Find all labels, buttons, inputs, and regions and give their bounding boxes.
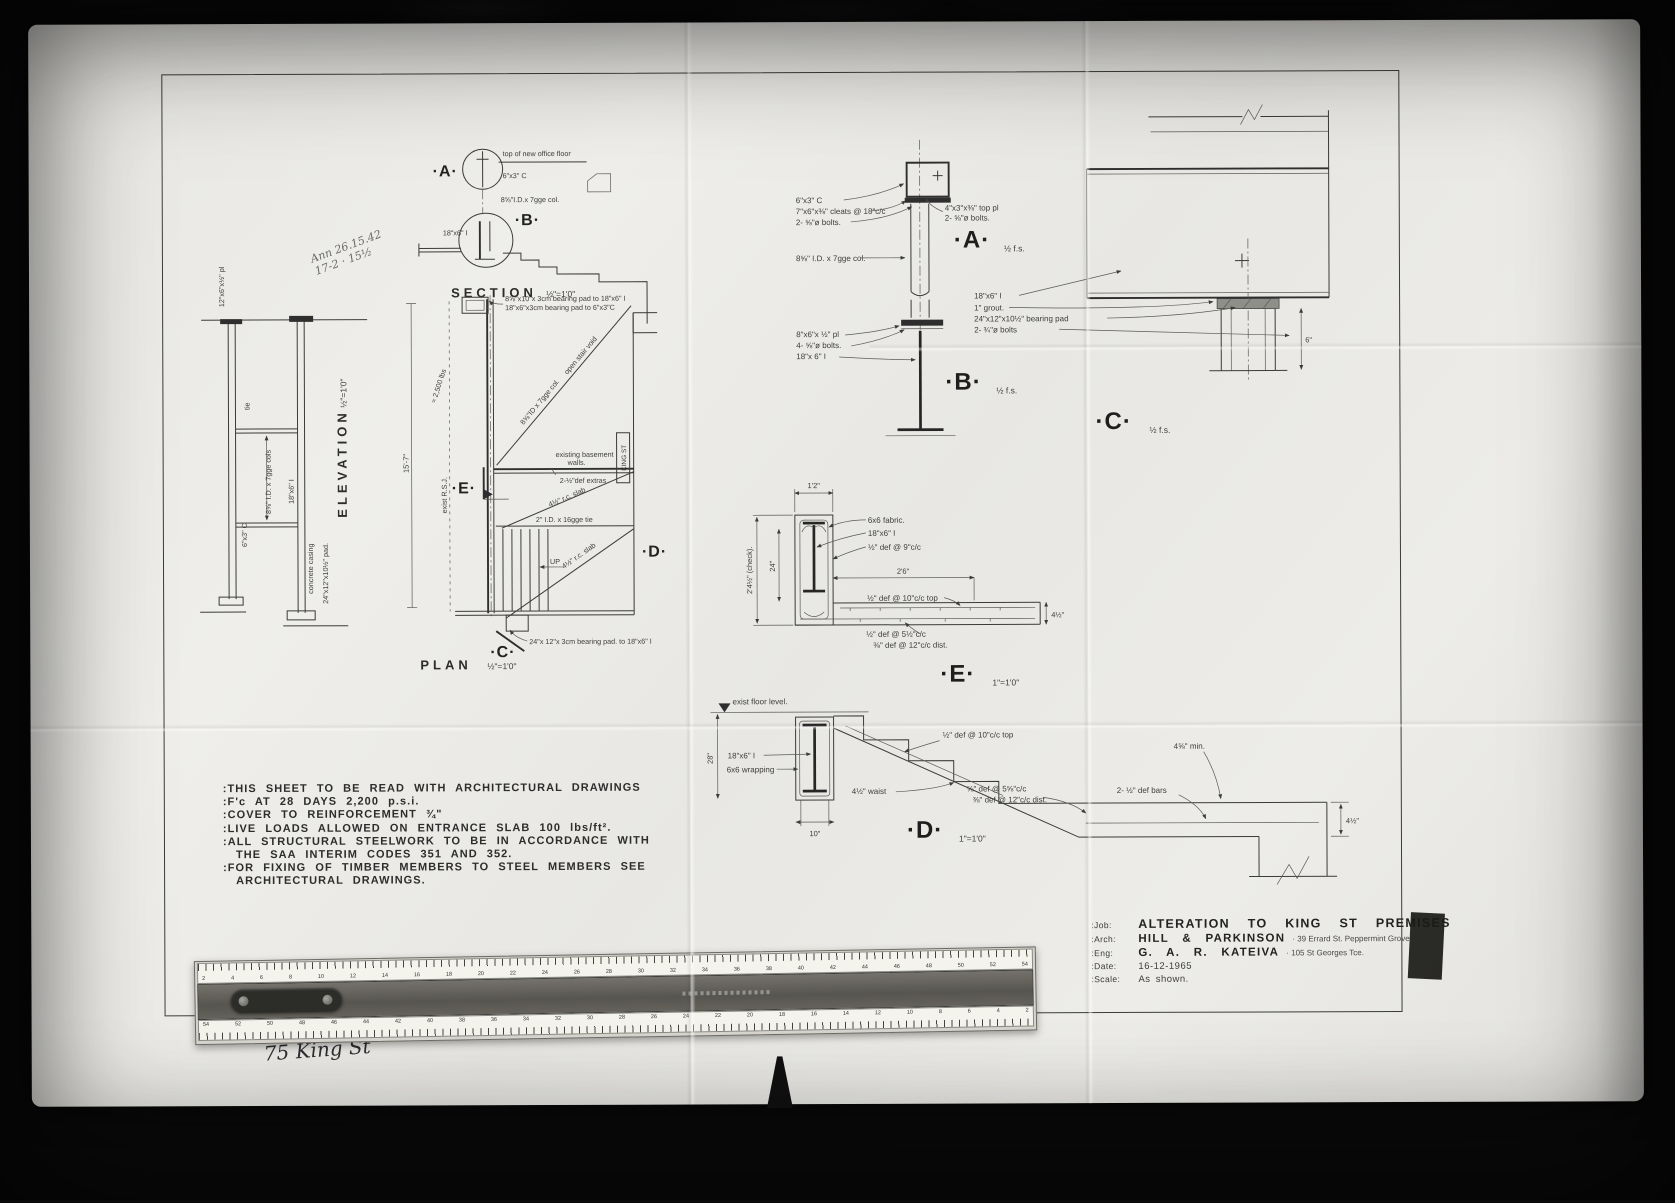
engineer-name: G. A. R. KATEIVA — [1138, 946, 1279, 958]
title-block: :Job: ALTERATION TO KING ST PREMISES :Ar… — [1091, 916, 1421, 987]
detail-a-scale: ½ f.s. — [1004, 243, 1025, 253]
detail-e-scale: 1"=1'0" — [992, 677, 1019, 687]
title-block-row-job: :Job: ALTERATION TO KING ST PREMISES — [1091, 916, 1421, 931]
title-block-label: :Job: — [1091, 920, 1131, 930]
detail-a-bolts-left-label: 2- ⅝"ø bolts. — [796, 218, 841, 227]
detail-d-marker: ·D· — [907, 817, 943, 844]
detail-e-fabric-label: 6x6 fabric. — [868, 516, 905, 525]
plan-rc-slab-label-1: 4½" r.c. slab — [547, 485, 587, 509]
elevation-plate-label: 12"x6"x½" pl — [217, 266, 226, 307]
detail-d-bars-top-label: ½" def @ 10"c/c top — [943, 730, 1014, 739]
architect-address: · 39 Errard St. Peppermint Grove — [1292, 934, 1409, 943]
view-elevation: 12"x6"x½" pl tie 6"x3" C 8⅝" I.D. x 7gge… — [199, 266, 368, 626]
title-block-label: :Date: — [1091, 961, 1131, 971]
title-block-label: :Eng: — [1091, 948, 1131, 958]
plan-bearing-pad-note-1: 8⅝"x10"x 3cm bearing pad to 18"x6" I — [505, 294, 626, 303]
detail-d: exist floor level. 28" 10" 18"x6" I 6x6 … — [705, 695, 1359, 886]
plan-bearing-pad-bottom-note: 24"x 12"x 3cm bearing pad. to 18"x6" I — [529, 637, 652, 646]
detail-e-beam-label: 18"x6" I — [868, 529, 896, 538]
ruler-etched-marking — [682, 990, 772, 996]
plan-marker-c: ·C· — [490, 644, 515, 661]
plan-title: PLAN — [420, 657, 471, 672]
elevation-channel-label: 6"x3" C — [240, 523, 249, 547]
drawing-date: 16-12-1965 — [1138, 961, 1192, 972]
title-block-label: :Arch: — [1091, 934, 1131, 944]
view-plan: exist R.S.J. 15'-7" ≈ 2,500 lbs 8⅝"x10"x… — [401, 294, 668, 673]
note-line: :FOR FIXING OF TIMBER MEMBERS TO STEEL M… — [223, 861, 661, 876]
detail-b-scale: ½ f.s. — [996, 385, 1017, 395]
section-column-label: 8⅝"I.D.x 7gge col. — [501, 195, 560, 204]
section-marker-a: ·A· — [433, 163, 458, 180]
detail-c-scale: ½ f.s. — [1150, 425, 1171, 435]
note-line: :ALL STRUCTURAL STEELWORK TO BE IN ACCOR… — [223, 834, 661, 849]
detail-d-bars-bottom-label: ⅝" def @ 5⅝"c/c — [967, 784, 1027, 793]
plan-rc-slab-label-2: 4½" r.c. slab — [560, 541, 597, 571]
plan-bearing-pad-note-2: 18"x6"x3cm bearing pad to 6"x3"C — [505, 303, 615, 312]
elevation-scale: ½"=1'0" — [338, 379, 348, 408]
plan-column-label: 8⅝"ID x 7gge col. — [518, 377, 561, 426]
title-block-row-date: :Date: 16-12-1965 — [1091, 960, 1421, 972]
elevation-pad-label: 24"x12"x10½" pad. — [321, 543, 330, 604]
detail-e-dim-span: 2'6" — [897, 567, 910, 576]
plan-dim-label: 15'-7" — [402, 454, 411, 473]
plan-open-void-label: open stair void — [562, 335, 599, 377]
photo-background: top of new office floor ·A· 6"x3" C 8⅝"I… — [0, 0, 1675, 1200]
detail-b-marker: ·B· — [945, 368, 981, 395]
detail-d-def-bars-label: 2- ½" def bars — [1117, 786, 1167, 795]
title-block-row-scale: :Scale: As shown. — [1091, 973, 1421, 985]
detail-a-channel-label: 6"x3" C — [796, 196, 823, 205]
detail-a-cleats-label: 7"x6"x⅜" cleats @ 18"c/c — [796, 207, 886, 216]
title-block-row-architect: :Arch: HILL & PARKINSON · 39 Errard St. … — [1091, 932, 1421, 945]
detail-e-marker: ·E· — [940, 661, 975, 688]
section-marker-b: ·B· — [515, 212, 540, 229]
screw-icon — [238, 996, 248, 1006]
detail-e-bars-side-label: ½" def @ 9"c/c — [868, 543, 921, 552]
detail-e-bars-top-label: ½" def @ 10"c/c top — [867, 594, 938, 603]
elevation-beam-label: 18"x6" I — [287, 479, 296, 504]
section-floor-note: top of new office floor — [503, 149, 572, 158]
section-channel-label: 6"x3" C — [503, 171, 527, 180]
plan-scale: ½"=1'0" — [487, 661, 516, 671]
detail-e-bars-bottom-label: ½" def @ 5½"c/c — [866, 630, 926, 639]
detail-a-column-label: 8⅝" I.D. x 7gge col. — [796, 254, 866, 263]
note-line: :LIVE LOADS ALLOWED ON ENTRANCE SLAB 100… — [223, 821, 661, 836]
detail-c-bolts-label: 2- ¾"ø bolts — [974, 325, 1017, 334]
detail-d-dim-base: 10" — [809, 829, 820, 838]
detail-e-dim-inner: 24" — [768, 560, 777, 571]
plan-up-label: UP — [550, 557, 560, 566]
detail-a-top-plate-label: 4"x3"x⅜" top pl — [945, 203, 999, 212]
detail-e-bars-dist-label: ⅜" def @ 12"c/c dist. — [873, 641, 947, 650]
detail-c-dim-label: 6" — [1305, 335, 1312, 344]
detail-d-scale: 1"=1'0" — [959, 833, 986, 843]
detail-b-beam-label: 18"x 6" I — [796, 352, 826, 361]
plan-existing-walls-2: walls. — [567, 458, 586, 467]
general-notes: :THIS SHEET TO BE READ WITH ARCHITECTURA… — [223, 782, 661, 889]
section-beam-label: 18"x6" I — [443, 228, 468, 237]
job-title: ALTERATION TO KING ST PREMISES — [1138, 916, 1451, 931]
ruler-handle — [230, 988, 342, 1014]
note-line: ARCHITECTURAL DRAWINGS. — [223, 874, 661, 889]
screw-icon — [322, 995, 332, 1005]
plan-load-note: ≈ 2,500 lbs — [429, 367, 448, 404]
detail-d-bars-dist-label: ⅜" def @ 12"c/c dist. — [973, 795, 1047, 804]
plan-king-st-label: KING ST — [621, 445, 628, 471]
detail-c-pad-label: 24"x12"x10½" bearing pad — [974, 314, 1068, 323]
detail-e-dim-slab: 4½" — [1051, 610, 1064, 619]
detail-c: 6" 18"x6" I 1" grout. 24"x12"x10½" beari… — [973, 104, 1329, 435]
plan-marker-d: ·D· — [642, 544, 667, 561]
detail-d-dim-slab: 4½" — [1346, 816, 1359, 825]
title-block-label: :Scale: — [1091, 974, 1131, 984]
detail-d-floor-note: exist floor level. — [732, 697, 787, 706]
detail-e-dim-top: 1'2" — [807, 481, 820, 490]
drawing-sheet: top of new office floor ·A· 6"x3" C 8⅝"I… — [28, 19, 1644, 1107]
elevation-columns-label: 8⅝" I.D. x 7gge cols — [264, 449, 273, 514]
detail-d-wrapping-label: 6x6 wrapping — [727, 765, 775, 774]
detail-d-beam-label: 18"x6" I — [728, 751, 756, 760]
elevation-tie-label: tie — [242, 402, 251, 410]
note-line: :THIS SHEET TO BE READ WITH ARCHITECTURA… — [223, 782, 661, 797]
detail-a-marker: ·A· — [954, 226, 990, 253]
plan-tie-label: 2" I.D. x 16gge tie — [536, 515, 593, 524]
detail-c-beam-label: 18"x6" I — [974, 291, 1002, 300]
elevation-casing-label: concrete casing — [306, 543, 315, 593]
detail-e-dim-left: 2'4½" (check). — [745, 547, 754, 594]
tape-mark — [1408, 912, 1445, 980]
plan-def-extras-label: 2-½"def extras — [560, 476, 607, 485]
detail-e: 1'2" 2'4½" (check). 24" 2'6" 4½" 6 — [745, 480, 1065, 688]
paper-edge-shadow — [1592, 19, 1644, 1101]
detail-c-grout-label: 1" grout. — [974, 303, 1004, 312]
detail-d-dim-left: 28" — [706, 753, 715, 764]
detail-a-bolts-right-label: 2- ⅝"ø bolts. — [945, 213, 990, 222]
detail-d-waist-label: 4½" waist — [852, 787, 887, 796]
engineer-address: · 105 St Georges Tce. — [1286, 948, 1364, 957]
title-block-row-engineer: :Eng: G. A. R. KATEIVA · 105 St Georges … — [1091, 946, 1421, 959]
scale-ruler: 2468101214161820222426283032343638404244… — [194, 946, 1037, 1045]
detail-b-plate-label: 8"x6"x ½" pl — [796, 330, 839, 339]
drawing-scale: As shown. — [1138, 974, 1188, 985]
detail-c-marker: ·C· — [1095, 408, 1131, 435]
detail-b-bolts-label: 4- ⅝"ø bolts. — [796, 341, 841, 350]
detail-d-min-dim-label: 4⅝" min. — [1174, 742, 1205, 751]
plan-exist-rsj-label: exist R.S.J. — [440, 477, 449, 513]
elevation-title: ELEVATION — [334, 409, 349, 518]
architect-name: HILL & PARKINSON — [1138, 932, 1285, 945]
plan-marker-e: ·E· — [452, 480, 476, 497]
